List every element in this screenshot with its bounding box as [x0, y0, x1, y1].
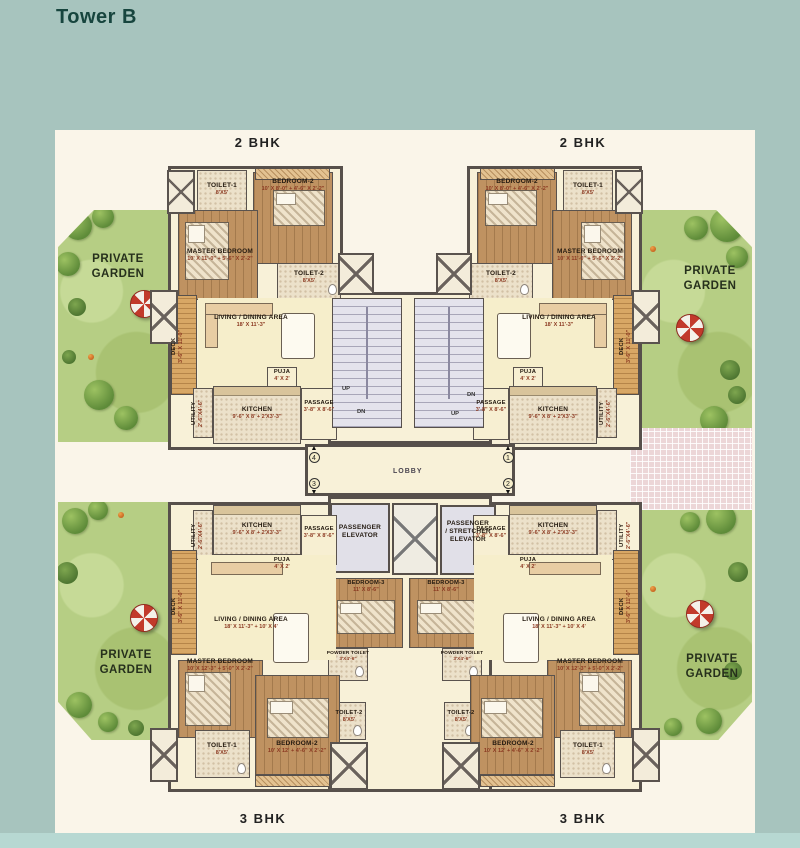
room-dim: 3'-8" X 8'-6" [289, 533, 349, 540]
label-master: MASTER BEDROOM 10' X 11'-0" + 5'-6" X 2'… [550, 248, 630, 262]
room-name: PUJA [262, 369, 302, 376]
page-title: Tower B [56, 6, 137, 29]
room-dim: 8'X5' [319, 717, 379, 724]
floor-plan-page: { "title": "Tower B", "unit_types": { "t… [0, 0, 800, 848]
label-living: LIVING / DINING AREA 18' X 11'-3" + 10' … [211, 616, 291, 630]
label-kitchen: KITCHEN 9'-6" X 8' + 2'X3'-3" [513, 522, 593, 536]
room-name: TOILET-2 [461, 270, 541, 278]
tree-icon [680, 512, 700, 532]
room-dim: 3'-6" X 11'-0" [626, 308, 633, 384]
unit-type-top-right: 2 BHK [560, 135, 607, 150]
room-dim: 2'-6"X4'-6" [606, 390, 613, 436]
label-bedroom3: BEDROOM-3 11' X 8'-6" [406, 580, 486, 594]
room-dim: 3'-8" X 8'-6" [461, 407, 521, 414]
floor-plan-panel: 2 BHK 2 BHK 3 BHK 3 BHK PRIVATE GARDEN P… [55, 130, 755, 833]
room-name: UTILITY [191, 512, 198, 558]
unit-type-top-left: 2 BHK [235, 135, 282, 150]
room-name: TOILET-2 [269, 270, 349, 278]
entrance-marker-1: ▲ 1 [501, 445, 515, 463]
room-dim: 8'X5' [548, 750, 628, 757]
bed [273, 190, 325, 226]
entrance-marker-2: 2 ▼ [501, 478, 515, 496]
tree-icon [84, 380, 114, 410]
room-dim: 18' X 11'-3" [211, 322, 291, 329]
room-dim: 3'-6" X 11'-0" [626, 568, 633, 644]
label-toilet2: TOILET-2 8'X5' [319, 710, 379, 724]
label-puja: PUJA 4' X 2' [508, 557, 548, 571]
room-name: MASTER BEDROOM [180, 658, 260, 666]
garden-label-line2: GARDEN [684, 280, 737, 292]
room-dim: 3'-8" X 8'-6" [461, 533, 521, 540]
umbrella-icon [686, 600, 714, 628]
room-dim: 10' X 12'-3" + 5'-0" X 2'-2" [550, 666, 630, 673]
label-deck: DECK 3'-6" X 11'-0" [171, 308, 185, 384]
label-master: MASTER BEDROOM 10' X 12'-3" + 5'-0" X 2'… [180, 658, 260, 672]
label-passage: PASSAGE 3'-8" X 8'-6" [289, 400, 349, 414]
room-name: KITCHEN [513, 406, 593, 414]
paved-terrace [630, 428, 752, 510]
garden-label-line2: GARDEN [100, 664, 153, 676]
label-passage: PASSAGE 3'-8" X 8'-6" [461, 400, 521, 414]
garden-label-line1: PRIVATE [92, 253, 144, 265]
label-toilet2: TOILET-2 8'X5' [461, 270, 541, 284]
bush-icon [56, 562, 78, 584]
tree-icon [684, 216, 708, 240]
elevator-shaft [392, 503, 438, 575]
label-utility: UTILITY 2'-6"X4'-6" [191, 512, 205, 558]
room-name: BEDROOM-2 [473, 740, 553, 748]
room-dim: 4' X 2' [508, 376, 548, 383]
room-name: PASSAGE [289, 526, 349, 533]
label-living: LIVING / DINING AREA 18' X 11'-3" + 10' … [519, 616, 599, 630]
room-dim: 4' X 2' [262, 376, 302, 383]
room-dim: 10' X 11'-0" + 5'-6" X 2'-2" [180, 256, 260, 263]
shrub-icon [88, 354, 94, 360]
stair-dn-label: DN [357, 409, 365, 415]
room-name: POWDER TOILET [326, 651, 370, 657]
down-arrow-icon: ▼ [307, 489, 321, 496]
label-toilet1: TOILET-1 8'X5' [182, 182, 262, 196]
label-kitchen: KITCHEN 9'-6" X 8' + 2'X3'-3" [513, 406, 593, 420]
tree-icon [62, 508, 88, 534]
room-name: PASSAGE [289, 400, 349, 407]
room-dim: 11' X 8'-6" [326, 587, 406, 594]
label-toilet1: TOILET-1 8'X5' [548, 182, 628, 196]
shrub-icon [650, 246, 656, 252]
label-utility: UTILITY 2'-6"X4'-6" [191, 390, 205, 436]
umbrella-icon [130, 604, 158, 632]
room-name: DECK [619, 568, 626, 644]
room-name: TOILET-1 [548, 742, 628, 750]
private-garden-bottom-right: PRIVATE GARDEN [640, 502, 752, 740]
bed [485, 190, 537, 226]
label-utility: UTILITY 2'-6"X4'-6" [599, 390, 613, 436]
bush-icon [728, 386, 746, 404]
tree-icon [66, 692, 92, 718]
garden-label-line2: GARDEN [686, 668, 739, 680]
bed [417, 600, 475, 634]
garden-label-line1: PRIVATE [686, 653, 738, 665]
label-powder-toilet: POWDER TOILET 3'X4'-6" [440, 651, 484, 663]
room-dim: 10' X 12' + 4'-6" X 2'-2" [257, 748, 337, 755]
room-dim: 4' X 2' [508, 564, 548, 571]
bush-icon [68, 298, 86, 316]
bed [185, 672, 231, 726]
room-dim: 9'-6" X 8' + 2'X3'-3" [513, 530, 593, 537]
label-passage: PASSAGE 3'-8" X 8'-6" [289, 526, 349, 540]
room-name: PUJA [262, 557, 302, 564]
room-name: LIVING / DINING AREA [519, 314, 599, 322]
room-name: BEDROOM-3 [326, 580, 406, 587]
room-dim: 10' X 12' + 4'-6" X 2'-2" [473, 748, 553, 755]
umbrella-icon [676, 314, 704, 342]
tree-icon [88, 500, 108, 520]
room-dim: 10' X 11'-0" + 5'-6" X 2'-2" [550, 256, 630, 263]
bed [337, 600, 395, 634]
balcony-hatch [480, 775, 555, 787]
room-name: TOILET-1 [548, 182, 628, 190]
room-name: BEDROOM-2 [257, 740, 337, 748]
ledge-box [632, 290, 660, 344]
label-puja: PUJA 4' X 2' [262, 369, 302, 383]
room-dim: 3'-6" X 11'-0" [178, 308, 185, 384]
private-garden-bottom-left: PRIVATE GARDEN [58, 502, 170, 740]
room-dim: 18' X 11'-3" + 10' X 4' [211, 624, 291, 631]
room-name: MASTER BEDROOM [550, 658, 630, 666]
label-bedroom3: BEDROOM-3 11' X 8'-6" [326, 580, 406, 594]
room-name: BEDROOM-2 [253, 178, 333, 186]
unit-type-bottom-right: 3 BHK [560, 811, 607, 826]
entrance-marker-4: ▲ 4 [307, 445, 321, 463]
tree-icon [664, 718, 682, 736]
label-toilet1: TOILET-1 8'X5' [182, 742, 262, 756]
room-dim: 8'X5' [431, 717, 491, 724]
stair-up-label: UP [342, 386, 350, 392]
lobby-label: LOBBY [393, 468, 423, 475]
stair-up-label: UP [451, 411, 459, 417]
room-name: PUJA [508, 557, 548, 564]
label-kitchen: KITCHEN 9'-6" X 8' + 2'X3'-3" [217, 406, 297, 420]
room-name: TOILET-1 [182, 742, 262, 750]
room-dim: 10' X 12'-3" + 5'-0" X 2'-2" [180, 666, 260, 673]
room-name: POWDER TOILET [440, 651, 484, 657]
label-puja: PUJA 4' X 2' [508, 369, 548, 383]
room-dim: 8'X5' [182, 750, 262, 757]
label-toilet2: TOILET-2 8'X5' [431, 710, 491, 724]
room-name: DECK [171, 308, 178, 384]
room-name: PASSAGE [461, 400, 521, 407]
room-dim: 2'-6"X4'-6" [198, 390, 205, 436]
room-dim: 9'-6" X 8' + 2'X3'-3" [217, 530, 297, 537]
shrub-icon [118, 512, 124, 518]
room-name: BEDROOM-3 [406, 580, 486, 587]
room-dim: 18' X 11'-3" [519, 322, 599, 329]
room-name: MASTER BEDROOM [550, 248, 630, 256]
bottom-band [0, 833, 800, 848]
room-dim: 8'X5' [182, 190, 262, 197]
room-dim: 8'X5' [461, 278, 541, 285]
entrance-marker-3: 3 ▼ [307, 478, 321, 496]
label-bedroom2: BEDROOM-2 10' X 8'-0" + 4'-6" X 2'-2" [253, 178, 333, 192]
room-name: LIVING / DINING AREA [211, 314, 291, 322]
bed [579, 672, 625, 726]
room-name: UTILITY [619, 512, 626, 558]
tree-icon [64, 212, 92, 240]
room-dim: 2'-6"X4'-6" [626, 512, 633, 558]
room-dim: 3'-6" X 11'-0" [178, 568, 185, 644]
marker-number: 3 [309, 478, 320, 489]
room-dim: 10' X 8'-0" + 4'-6" X 2'-2" [253, 186, 333, 193]
bush-icon [62, 350, 76, 364]
unit-type-bottom-left: 3 BHK [240, 811, 287, 826]
label-kitchen: KITCHEN 9'-6" X 8' + 2'X3'-3" [217, 522, 297, 536]
room-name: KITCHEN [513, 522, 593, 530]
room-dim: 10' X 8'-0" + 4'-6" X 2'-2" [477, 186, 557, 193]
up-arrow-icon: ▲ [501, 445, 515, 452]
ledge-box [632, 728, 660, 782]
bush-icon [720, 360, 740, 380]
label-master: MASTER BEDROOM 10' X 12'-3" + 5'-0" X 2'… [550, 658, 630, 672]
bush-icon [128, 720, 144, 736]
label-bedroom2: BEDROOM-2 10' X 12' + 4'-6" X 2'-2" [257, 740, 337, 754]
room-name: MASTER BEDROOM [180, 248, 260, 256]
room-name: TOILET-2 [431, 710, 491, 717]
stair-dn-label: DN [467, 392, 475, 398]
tree-icon [710, 208, 744, 242]
marker-number: 4 [309, 452, 320, 463]
room-dim: 3'X4'-6" [440, 657, 484, 663]
room-dim: 11' X 8'-6" [406, 587, 486, 594]
room-name: PUJA [508, 369, 548, 376]
ledge-box [150, 728, 178, 782]
label-living: LIVING / DINING AREA 18' X 11'-3" [211, 314, 291, 328]
room-dim: 9'-6" X 8' + 2'X3'-3" [513, 414, 593, 421]
label-puja: PUJA 4' X 2' [262, 557, 302, 571]
room-name: LIVING / DINING AREA [519, 616, 599, 624]
room-dim: 3'X4'-6" [326, 657, 370, 663]
shrub-icon [650, 586, 656, 592]
label-master: MASTER BEDROOM 10' X 11'-0" + 5'-6" X 2'… [180, 248, 260, 262]
room-name: KITCHEN [217, 406, 297, 414]
label-deck: DECK 3'-6" X 11'-0" [619, 568, 633, 644]
marker-number: 1 [503, 452, 514, 463]
down-arrow-icon: ▼ [501, 489, 515, 496]
tree-icon [114, 406, 138, 430]
room-name: TOILET-2 [319, 710, 379, 717]
room-name: DECK [619, 308, 626, 384]
tree-icon [98, 712, 118, 732]
label-living: LIVING / DINING AREA 18' X 11'-3" [519, 314, 599, 328]
room-dim: 8'X5' [269, 278, 349, 285]
garden-label: PRIVATE GARDEN [70, 252, 166, 282]
garden-label: PRIVATE GARDEN [670, 652, 754, 682]
room-name: UTILITY [599, 390, 606, 436]
room-name: UTILITY [191, 390, 198, 436]
label-deck: DECK 3'-6" X 11'-0" [171, 568, 185, 644]
room-dim: 3'-8" X 8'-6" [289, 407, 349, 414]
room-dim: 2'-6"X4'-6" [198, 512, 205, 558]
tree-icon [696, 708, 722, 734]
room-dim: 18' X 11'-3" + 10' X 4' [519, 624, 599, 631]
up-arrow-icon: ▲ [307, 445, 321, 452]
tree-icon [92, 206, 114, 228]
label-deck: DECK 3'-6" X 11'-0" [619, 308, 633, 384]
room-dim: 9'-6" X 8' + 2'X3'-3" [217, 414, 297, 421]
label-bedroom2: BEDROOM-2 10' X 8'-0" + 4'-6" X 2'-2" [477, 178, 557, 192]
label-powder-toilet: POWDER TOILET 3'X4'-6" [326, 651, 370, 663]
room-name: LIVING / DINING AREA [211, 616, 291, 624]
garden-label-line2: GARDEN [92, 268, 145, 280]
room-name: BEDROOM-2 [477, 178, 557, 186]
room-name: DECK [171, 568, 178, 644]
room-dim: 4' X 2' [262, 564, 302, 571]
garden-label: PRIVATE GARDEN [84, 648, 168, 678]
label-utility: UTILITY 2'-6"X4'-6" [619, 512, 633, 558]
room-dim: 8'X5' [548, 190, 628, 197]
bush-icon [728, 562, 748, 582]
room-name: TOILET-1 [182, 182, 262, 190]
balcony-hatch [255, 775, 330, 787]
label-toilet1: TOILET-1 8'X5' [548, 742, 628, 756]
room-name: KITCHEN [217, 522, 297, 530]
garden-label-line1: PRIVATE [100, 649, 152, 661]
label-bedroom2: BEDROOM-2 10' X 12' + 4'-6" X 2'-2" [473, 740, 553, 754]
label-passage: PASSAGE 3'-8" X 8'-6" [461, 526, 521, 540]
room-name: PASSAGE [461, 526, 521, 533]
marker-number: 2 [503, 478, 514, 489]
label-toilet2: TOILET-2 8'X5' [269, 270, 349, 284]
garden-label-line1: PRIVATE [684, 265, 736, 277]
garden-label: PRIVATE GARDEN [668, 264, 752, 294]
